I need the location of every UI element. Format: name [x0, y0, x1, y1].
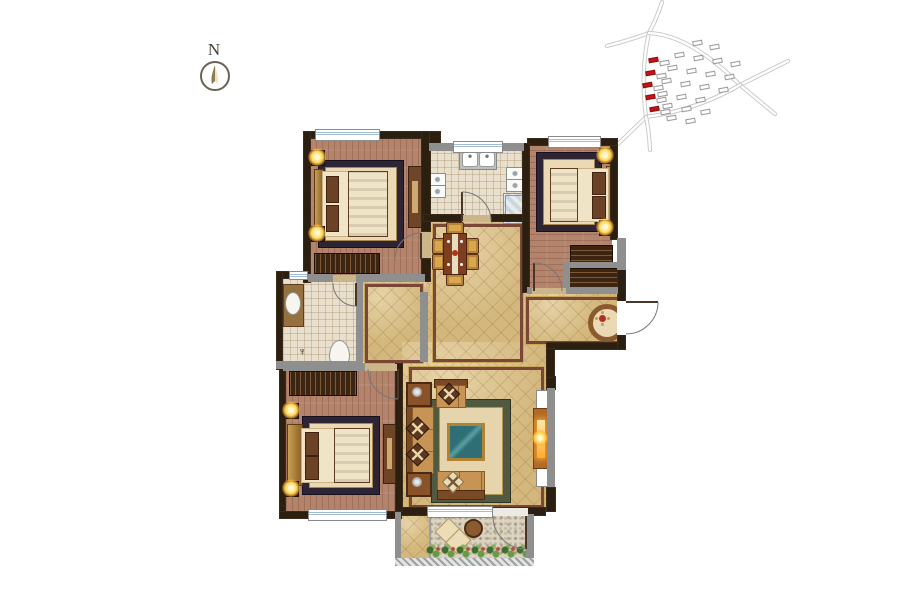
- tv-glow: [532, 430, 548, 446]
- lamp-glow: [308, 148, 326, 166]
- lamp-glow: [596, 146, 614, 164]
- lamp-glow: [308, 224, 326, 242]
- lamp-glow: [282, 401, 300, 419]
- door-swings: [270, 120, 670, 600]
- compass-north-label: N: [203, 40, 225, 60]
- compass-needle-icon: [202, 63, 228, 89]
- lamp-glow: [596, 218, 614, 236]
- lamp-glow: [282, 479, 300, 497]
- floor-plan-canvas: N: [0, 0, 900, 600]
- site-buildings: [643, 40, 741, 124]
- compass-circle: [200, 61, 230, 91]
